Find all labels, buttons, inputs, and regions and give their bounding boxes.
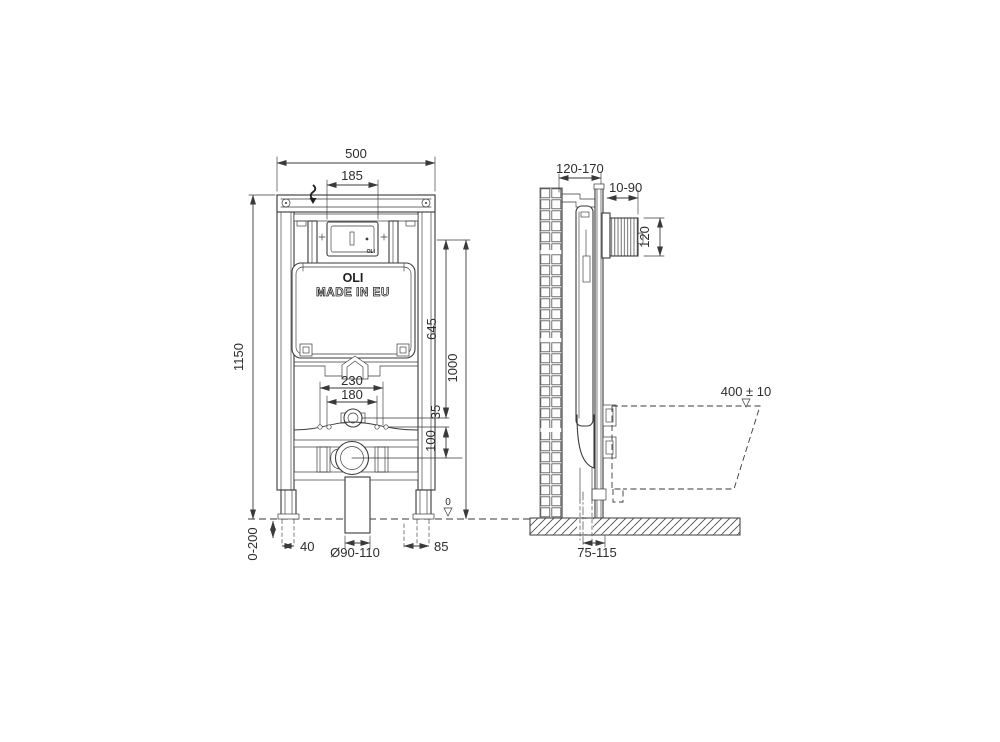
datum-level-icon: 0	[444, 497, 452, 516]
dim-box-height: 120	[637, 218, 664, 256]
dim-bowl-height: 400 ± 10	[721, 384, 772, 407]
drawing-canvas: OLI OLI MADE IN EU 230	[0, 0, 1000, 742]
brand-label: OLI	[343, 271, 364, 285]
fixing-studs	[603, 405, 616, 458]
dim-100-label: 100	[423, 430, 438, 452]
dim-drain-diameter: Ø90-110	[330, 536, 380, 560]
floor-slab	[530, 518, 740, 535]
box-brand-label: OLI	[367, 249, 376, 255]
toilet-bowl-outline	[612, 406, 760, 502]
dim-85-label: 85	[434, 539, 448, 554]
dim-120-170-label: 120-170	[556, 161, 604, 176]
cistern-tank: OLI MADE IN EU	[292, 263, 418, 362]
dim-foot-offset: 85	[404, 524, 448, 554]
made-in-label: MADE IN EU	[316, 287, 390, 299]
technical-drawing-page: OLI OLI MADE IN EU 230	[0, 0, 1000, 742]
water-inlet-fitting	[341, 409, 365, 427]
wall-bracket	[562, 194, 595, 207]
cistern-profile	[576, 206, 594, 540]
side-view: 400 ± 10 120-170 10-90 120 75-115	[530, 161, 771, 560]
tiled-wall	[539, 188, 563, 518]
dim-40-label: 40	[300, 539, 314, 554]
dim-1000-label: 1000	[445, 354, 460, 383]
dim-foot-width: 40	[282, 539, 314, 554]
dim-230-label: 230	[341, 373, 363, 388]
dim-0-200-label: 0-200	[245, 527, 260, 560]
dim-185-label: 185	[341, 168, 363, 183]
datum-zero-label: 0	[445, 497, 451, 508]
dim-total-height: 1150	[231, 195, 275, 519]
dim-645-label: 645	[424, 318, 439, 340]
drain-pipe	[345, 477, 370, 533]
dim-400-label: 400 ± 10	[721, 384, 772, 399]
dim-plate-depth: 10-90	[607, 180, 642, 214]
dim-75-115-label: 75-115	[577, 545, 617, 560]
dim-drain-label: Ø90-110	[330, 545, 380, 560]
dim-120-label: 120	[637, 226, 652, 248]
dim-35-label: 35	[428, 405, 443, 419]
dim-500-label: 500	[345, 146, 367, 161]
flush-plate-box: OLI	[319, 222, 387, 256]
dim-180-label: 180	[341, 387, 363, 402]
front-view: OLI OLI MADE IN EU 230	[231, 146, 531, 561]
dim-1150-label: 1150	[231, 343, 246, 371]
dim-10-90-label: 10-90	[609, 180, 642, 195]
dim-leg-adjust: 0-200	[245, 521, 273, 561]
